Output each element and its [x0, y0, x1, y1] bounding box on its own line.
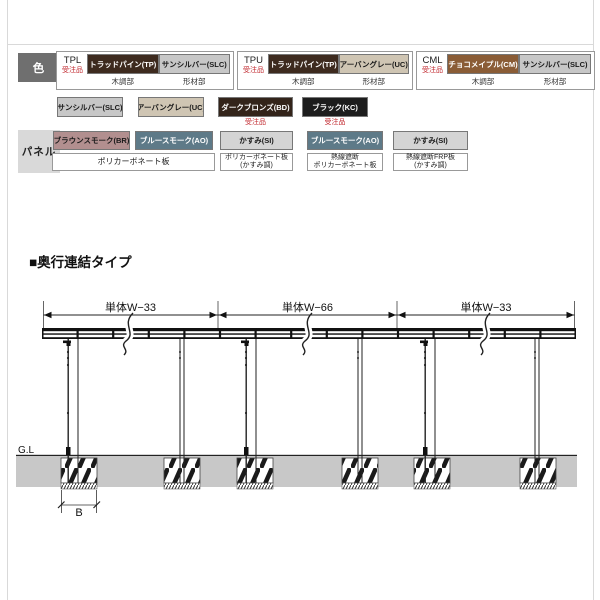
color-code: TPL — [64, 56, 81, 66]
single-color-sun-silver: サンシルバー(SLC) — [57, 97, 123, 117]
color-group-tpl: TPL 受注品 トラッドパイン(TP) サンシルバー(SLC) 木調部 形材部 — [56, 51, 234, 90]
order-note: 受注品 — [62, 66, 83, 75]
swatch-kasumi: かすみ(SI) — [220, 131, 293, 150]
color-group-prefix: TPU 受注品 — [241, 54, 266, 87]
color-group-prefix: TPL 受注品 — [60, 54, 85, 87]
order-note: 受注品 — [243, 66, 264, 75]
wood-part-label: 木調部 — [447, 74, 519, 87]
wood-part-label: 木調部 — [268, 74, 339, 87]
ground-line — [16, 455, 577, 456]
wood-part-label: 木調部 — [87, 74, 159, 87]
frame-part-label: 形材部 — [159, 74, 231, 87]
color-code: CML — [422, 56, 442, 66]
frame-part-label: 形材部 — [519, 74, 591, 87]
color-row-header: 色 — [18, 53, 60, 82]
color-group-tpu: TPU 受注品 トラッドパイン(TP) アーバングレー(UC) 木調部 形材部 — [237, 51, 413, 90]
swatch-blue-smoke: ブルースモーク(AO) — [135, 131, 213, 150]
frame-part-label: 形材部 — [339, 74, 410, 87]
ground-band — [16, 456, 577, 487]
swatch-trad-pine: トラッドパイン(TP) — [268, 54, 339, 74]
swatch-sun-silver: サンシルバー(SLC) — [159, 54, 231, 74]
swatch-kasumi: かすみ(SI) — [393, 131, 468, 150]
section-divider-rule — [8, 44, 593, 45]
swatch-sun-silver: サンシルバー(SLC) — [57, 97, 123, 117]
material-label-heatblock-frp: 熱線遮断FRP板 (かすみ調) — [393, 153, 468, 171]
color-group-cml: CML 受注品 チョコメイプル(CM) サンシルバー(SLC) 木調部 形材部 — [416, 51, 595, 90]
span-label-right: 単体W−33 — [460, 300, 511, 314]
span-label-left: 単体W−33 — [105, 300, 156, 314]
swatch-sun-silver: サンシルバー(SLC) — [519, 54, 591, 74]
material-label-polycarbonate-kasumi: ポリカーボネート板 (かすみ調) — [220, 153, 293, 171]
foundation — [237, 458, 273, 489]
product-spec-sheet: 色 TPL 受注品 トラッドパイン(TP) サンシルバー(SLC) 木調部 形材… — [0, 0, 600, 600]
section-title: ■奥行連結タイプ — [29, 251, 132, 271]
color-code: TPU — [244, 56, 263, 66]
swatch-urban-gray: アーバングレー(UC) — [138, 97, 204, 117]
single-color-dark-bronze: ダークブロンズ(BD) 受注品 — [218, 97, 293, 127]
swatch-dark-bronze: ダークブロンズ(BD) — [218, 97, 293, 117]
swatch-brown-smoke: ブラウンスモーク(BR) — [53, 131, 130, 150]
swatch-black: ブラック(KC) — [302, 97, 368, 117]
swatch-choco-maple: チョコメイプル(CM) — [447, 54, 519, 74]
ground — [16, 455, 577, 487]
single-color-urban-gray: アーバングレー(UC) — [138, 97, 204, 117]
order-note: 受注品 — [245, 118, 266, 127]
swatch-blue-smoke: ブルースモーク(AO) — [307, 131, 383, 150]
foundation — [61, 458, 97, 489]
single-color-black: ブラック(KC) 受注品 — [302, 97, 368, 127]
foundation — [164, 458, 200, 489]
order-note: 受注品 — [422, 66, 443, 75]
swatch-urban-gray: アーバングレー(UC) — [339, 54, 410, 74]
elevation-diagram: G.L — [0, 293, 600, 533]
foundation — [342, 458, 378, 489]
order-note: 受注品 — [325, 118, 346, 127]
elevation-drawing: G.L — [0, 293, 600, 533]
gl-label: G.L — [18, 445, 35, 456]
span-label-middle: 単体W−66 — [282, 300, 333, 314]
foundation — [414, 458, 450, 489]
footing-width-label: B — [75, 507, 82, 519]
material-label-heatblock-polycarbonate: 熱線遮断 ポリカーボネート板 — [307, 153, 383, 171]
swatch-trad-pine: トラッドパイン(TP) — [87, 54, 159, 74]
color-group-prefix: CML 受注品 — [420, 54, 445, 87]
foundation — [520, 458, 556, 489]
material-label-polycarbonate: ポリカーボネート板 — [52, 153, 215, 171]
